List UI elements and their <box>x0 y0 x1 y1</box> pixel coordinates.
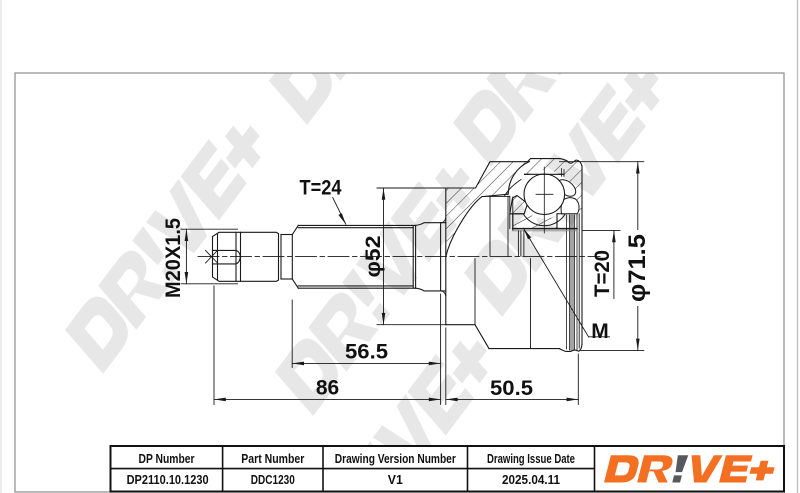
svg-text:DP Number: DP Number <box>139 452 195 466</box>
svg-text:φ71.5: φ71.5 <box>624 234 651 302</box>
svg-text:M20X1.5: M20X1.5 <box>162 218 185 298</box>
svg-text:50.5: 50.5 <box>490 377 533 400</box>
svg-text:86: 86 <box>316 377 339 400</box>
svg-text:DDC1230: DDC1230 <box>251 473 295 487</box>
svg-text:56.5: 56.5 <box>345 341 388 364</box>
svg-text:T=24: T=24 <box>300 177 342 200</box>
svg-text:T=20: T=20 <box>591 250 614 297</box>
svg-text:2025.04.11: 2025.04.11 <box>502 473 560 487</box>
svg-text:Part Number: Part Number <box>241 452 304 466</box>
svg-text:M: M <box>591 320 609 343</box>
svg-text:φ52: φ52 <box>362 236 385 278</box>
svg-text:Drawing Issue Date: Drawing Issue Date <box>487 452 575 466</box>
svg-text:DP2110.10.1230: DP2110.10.1230 <box>127 473 209 487</box>
svg-text:V1: V1 <box>388 473 403 487</box>
svg-text:Drawing Version Number: Drawing Version Number <box>335 452 456 466</box>
